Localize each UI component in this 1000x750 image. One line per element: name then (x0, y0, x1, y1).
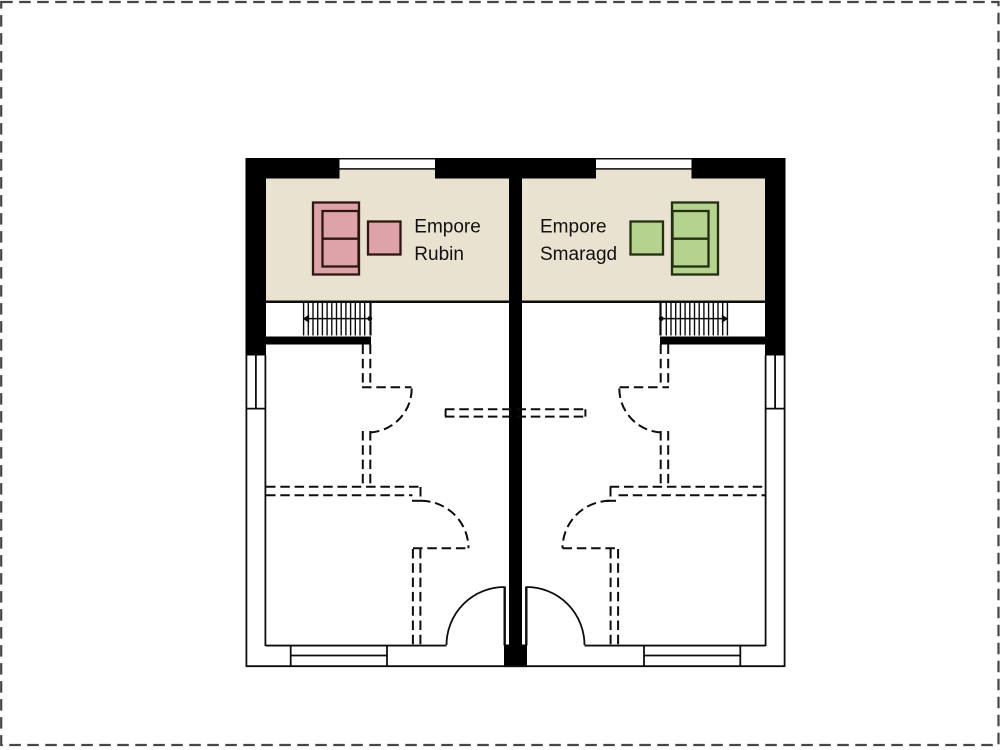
svg-text:Empore: Empore (540, 216, 607, 237)
svg-text:Empore: Empore (414, 216, 481, 237)
svg-text:Smaragd: Smaragd (540, 244, 617, 265)
svg-text:Rubin: Rubin (414, 244, 464, 265)
